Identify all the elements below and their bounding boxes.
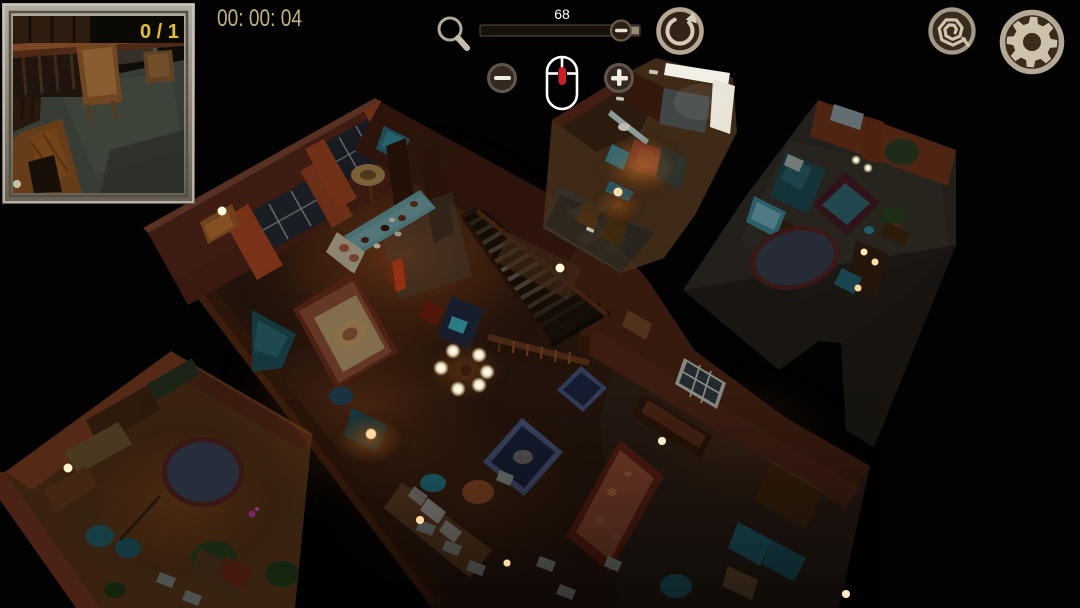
svg-text:68: 68 (554, 6, 570, 22)
svg-text:0 / 1: 0 / 1 (140, 21, 179, 43)
svg-text:00: 00: 04: 00: 00: 04 (217, 5, 302, 32)
